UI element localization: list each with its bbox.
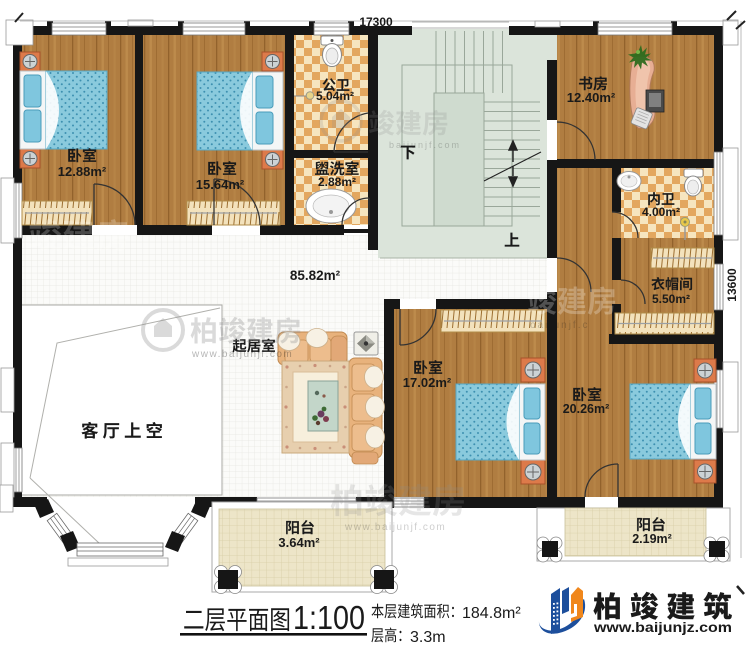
svg-text:15.64m²: 15.64m²: [196, 177, 245, 192]
svg-text:oaijunjf.c: oaijunjf.c: [530, 320, 589, 331]
svg-text:www.baijunjf.com: www.baijunjf.com: [344, 522, 446, 533]
svg-text:3.64m²: 3.64m²: [278, 535, 320, 550]
svg-text:13600: 13600: [725, 268, 739, 302]
svg-text:17300: 17300: [359, 15, 393, 29]
svg-text:2.19m²: 2.19m²: [632, 532, 672, 546]
svg-text:4.00m²: 4.00m²: [642, 205, 680, 219]
svg-text:20.26m²: 20.26m²: [563, 402, 610, 416]
svg-text:3.3m: 3.3m: [410, 629, 446, 646]
svg-text:2.88m²: 2.88m²: [318, 175, 356, 189]
svg-text:baijunjf.com: baijunjf.com: [389, 140, 461, 150]
svg-text:12.40m²: 12.40m²: [567, 90, 616, 105]
svg-text:www.baijunjz.com: www.baijunjz.com: [593, 620, 732, 635]
svg-text:12.88m²: 12.88m²: [58, 164, 107, 179]
svg-text:1:100: 1:100: [293, 599, 365, 636]
svg-text:www.baijunjf.com: www.baijunjf.com: [191, 349, 293, 360]
svg-text:184.8m²: 184.8m²: [462, 605, 521, 622]
svg-text:85.82m²: 85.82m²: [290, 268, 341, 283]
svg-text:5.50m²: 5.50m²: [652, 292, 690, 306]
svg-text:17.02m²: 17.02m²: [403, 375, 452, 390]
